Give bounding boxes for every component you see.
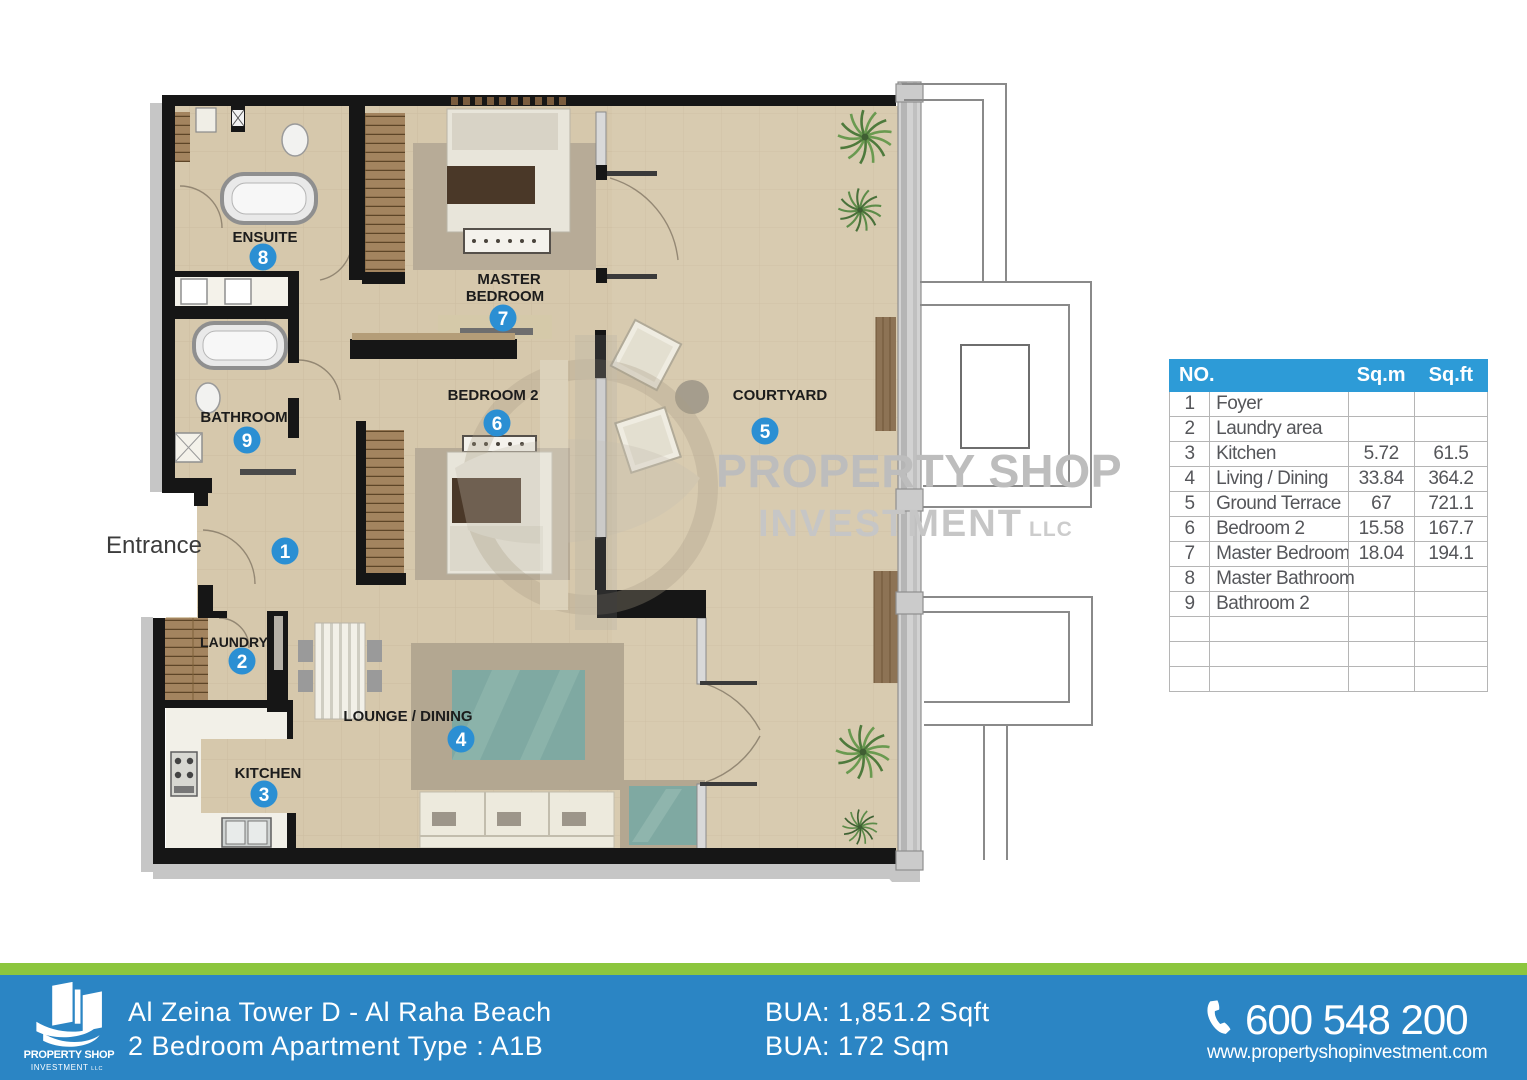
svg-text:KITCHEN: KITCHEN bbox=[235, 765, 302, 782]
svg-text:BEDROOM 2: BEDROOM 2 bbox=[448, 387, 539, 404]
svg-text:Entrance: Entrance bbox=[106, 532, 202, 559]
svg-text:6: 6 bbox=[492, 414, 503, 435]
svg-text:8: 8 bbox=[258, 248, 269, 269]
svg-text:INVESTMENT: INVESTMENT bbox=[758, 503, 1023, 545]
svg-text:LAUNDRY: LAUNDRY bbox=[200, 634, 269, 650]
svg-text:LOUNGE / DINING: LOUNGE / DINING bbox=[343, 708, 472, 725]
svg-text:MASTER: MASTER bbox=[477, 271, 541, 288]
svg-text:BEDROOM: BEDROOM bbox=[466, 288, 544, 305]
svg-text:7: 7 bbox=[498, 309, 509, 330]
svg-text:3: 3 bbox=[259, 785, 270, 806]
svg-text:INVESTMENT LLC: INVESTMENT LLC bbox=[31, 1063, 103, 1072]
svg-text:ENSUITE: ENSUITE bbox=[232, 229, 297, 246]
svg-text:PROPERTY SHOP: PROPERTY SHOP bbox=[24, 1049, 115, 1061]
svg-text:4: 4 bbox=[456, 730, 467, 751]
svg-text:COURTYARD: COURTYARD bbox=[733, 387, 828, 404]
svg-text:5: 5 bbox=[760, 422, 771, 443]
svg-text:1: 1 bbox=[280, 542, 291, 563]
svg-text:PROPERTY SHOP: PROPERTY SHOP bbox=[716, 445, 1122, 497]
svg-text:2: 2 bbox=[237, 652, 248, 673]
svg-text:BATHROOM: BATHROOM bbox=[200, 409, 287, 426]
svg-text:LLC: LLC bbox=[1029, 518, 1073, 541]
svg-text:9: 9 bbox=[242, 431, 253, 452]
